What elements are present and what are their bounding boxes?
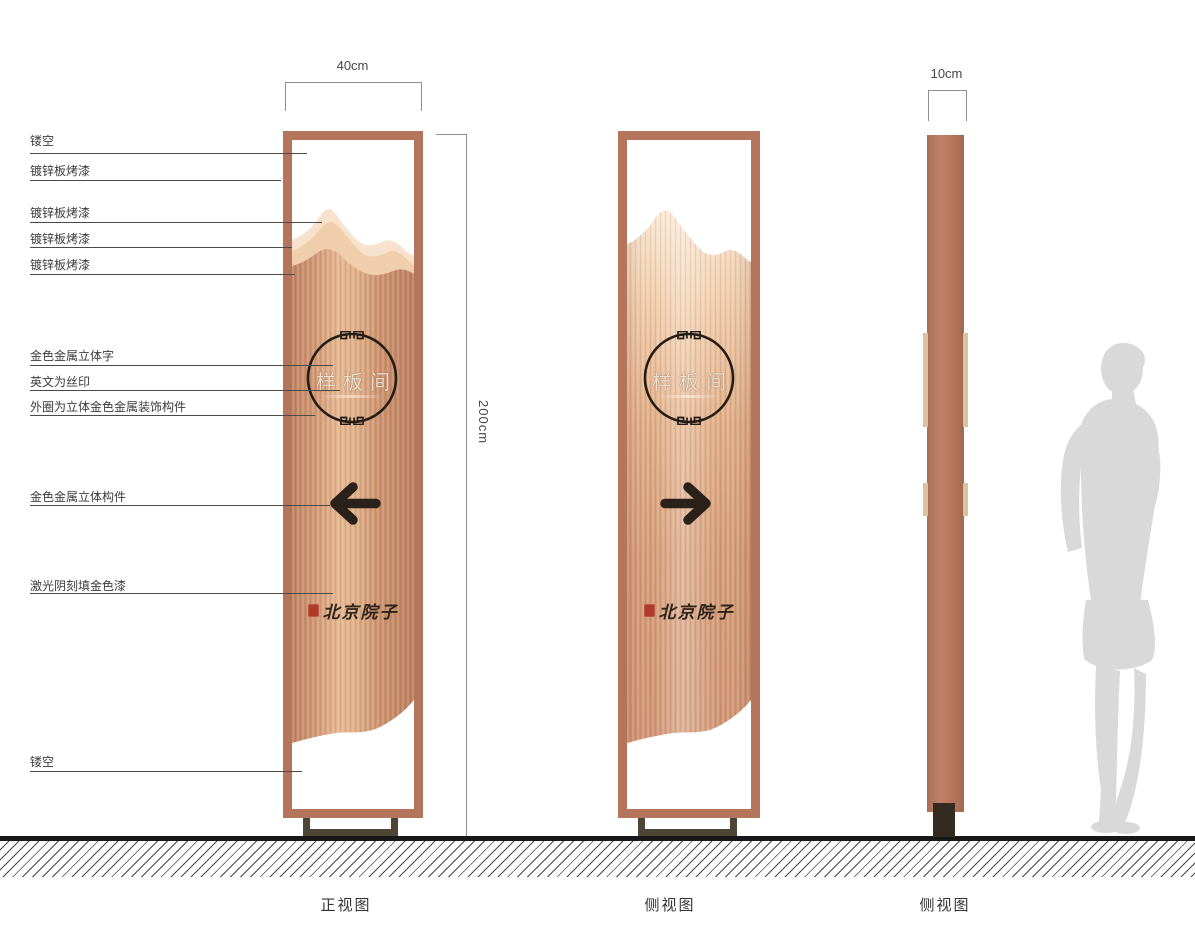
profile-pillar-bar — [927, 135, 964, 812]
callout-laser-engraved: 激光阴刻填金色漆 — [30, 577, 126, 594]
view-label-side-1: 侧视图 — [615, 894, 725, 915]
callout-line — [30, 505, 330, 506]
callout-galvanized-3: 镀锌板烤漆 — [30, 230, 90, 247]
callout-line — [30, 593, 333, 594]
callout-galvanized-4: 镀锌板烤漆 — [30, 256, 90, 273]
brand-row-side: 北京院子 — [627, 598, 751, 623]
dimension-height-line — [466, 134, 467, 836]
seal-stamp-icon — [308, 604, 319, 617]
dimension-bracket-40cm — [285, 82, 422, 111]
dimension-side-width: 10cm — [898, 66, 995, 81]
signage-spec-drawing: 镂空 镀锌板烤漆 镀锌板烤漆 镀锌板烤漆 镀锌板烤漆 金色金属立体字 英文为丝印… — [0, 0, 1195, 927]
side-pillar-artwork — [627, 140, 751, 809]
callout-galvanized-1: 镀锌板烤漆 — [30, 162, 90, 179]
mountain-body-brushed-texture — [627, 210, 751, 743]
front-view-pillar-frame — [283, 131, 423, 818]
view-label-front: 正视图 — [291, 894, 401, 915]
callout-line — [30, 771, 302, 772]
side-view-pillar-frame — [618, 131, 760, 818]
brand-row-front: 北京院子 — [292, 598, 414, 623]
callout-line — [30, 274, 295, 275]
callout-line — [30, 180, 281, 181]
human-scale-silhouette — [1038, 338, 1178, 836]
callout-hollow-bottom: 镂空 — [30, 753, 54, 770]
arrow-side-protrusion-right — [963, 483, 968, 516]
callout-gold-component: 金色金属立体构件 — [30, 488, 126, 505]
silkscreen-english-smudge — [322, 395, 382, 398]
callout-line — [30, 153, 307, 154]
callout-gold-letters: 金色金属立体字 — [30, 347, 114, 364]
seal-stamp-icon — [644, 604, 655, 617]
dimension-front-width: 40cm — [285, 58, 420, 73]
dimension-extension-line — [436, 134, 466, 135]
dimension-bracket-10cm — [928, 90, 967, 121]
profile-base-foot — [933, 803, 955, 837]
callout-line — [30, 222, 322, 223]
silkscreen-english-smudge — [659, 395, 719, 398]
brand-text-side: 北京院子 — [659, 598, 735, 623]
callout-hollow-top: 镂空 — [30, 132, 54, 149]
left-arrow-icon — [322, 481, 382, 526]
ground-hatch — [0, 841, 1195, 877]
panel-text-side: 样板间 — [627, 366, 751, 395]
arrow-side-protrusion-left — [923, 483, 928, 516]
brand-text-front: 北京院子 — [323, 598, 399, 623]
callout-silkscreen-english: 英文为丝印 — [30, 373, 90, 390]
front-pillar-artwork — [292, 140, 414, 809]
emblem-side-protrusion-left — [923, 333, 928, 427]
right-arrow-icon — [659, 481, 719, 526]
callout-line — [30, 247, 292, 248]
callout-line — [30, 365, 333, 366]
emblem-side-protrusion-right — [963, 333, 968, 427]
callout-gold-ring: 外圈为立体金色金属装饰构件 — [30, 398, 186, 415]
view-label-side-2: 侧视图 — [890, 894, 1000, 915]
callout-line — [30, 415, 315, 416]
callout-galvanized-2: 镀锌板烤漆 — [30, 204, 90, 221]
dimension-height: 200cm — [476, 400, 491, 444]
callout-line — [30, 390, 340, 391]
